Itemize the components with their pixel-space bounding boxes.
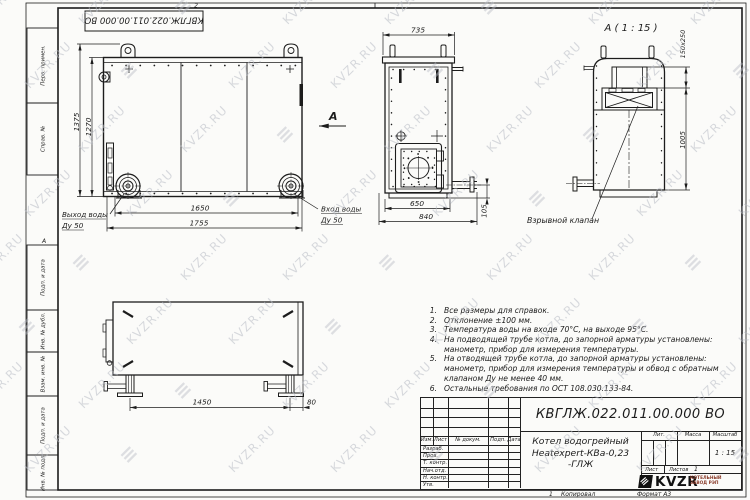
side-dim-width-top: 735 <box>411 26 425 35</box>
right-leg <box>264 375 304 397</box>
col-doc: № докум. <box>448 436 488 445</box>
note-text: манометр, прибор для измерения температу… <box>444 345 639 355</box>
top-stamp: КВГЛЖ.022.011.00.000 ВО <box>84 11 203 31</box>
kvzr-logo-subtitle-line2: ЗАВОД РЭП <box>690 481 722 486</box>
detail-a-title: А ( 1 : 15 ) <box>604 23 658 34</box>
outlet-label-line1: Выход воды <box>62 210 108 219</box>
bottom-dim-legs: 1450 <box>193 398 212 407</box>
margin-field-1: Справ. № <box>41 125 47 152</box>
product-name: Котел водогрейный Heatexpert-КВа-0,23 -Г… <box>520 436 641 471</box>
note-line: манометр, прибор для измерения температу… <box>424 364 744 374</box>
col-list: Лист <box>433 436 448 445</box>
note-text: Все размеры для справок. <box>444 306 549 316</box>
drawing-sheet: 2 А Перв. примен. Справ. № Подп. и дата … <box>0 0 750 500</box>
note-text: Остальные требования по ОСТ 108.030.133-… <box>444 384 633 394</box>
note-number: 1. <box>424 306 437 316</box>
row-razrab: Разраб. <box>423 446 443 452</box>
note-line: 5.На отводящей трубе котла, до запорной … <box>424 354 744 364</box>
margin-field-3: Инв. № дубл. <box>41 313 47 350</box>
title-block: Изм. Лист № докум. Подп. Дата Разраб. Пр… <box>420 397 742 490</box>
note-text: клапаном Ду не менее 40 мм. <box>444 374 563 384</box>
margin-labels: Перв. примен. Справ. № Подп. и дата Инв.… <box>41 45 47 491</box>
lit-label: Лит. <box>641 431 677 440</box>
note-text: На отводящей трубе котла, до запорной ар… <box>444 354 707 364</box>
margin-field-0: Перв. примен. <box>41 45 47 85</box>
frame-zone-top: 2 <box>194 3 198 10</box>
note-text: На подводящей трубе котла, до запорной а… <box>444 335 713 345</box>
note-number: 2. <box>424 316 437 326</box>
col-podp: Подп. <box>488 436 508 445</box>
detail-a-dim-height: 1005 <box>679 131 687 149</box>
note-number: 4. <box>424 335 437 345</box>
note-text: манометр, прибор для измерения температу… <box>444 364 719 374</box>
inlet-label-line1: Вход воды <box>321 205 361 214</box>
note-text: Отклонение ±100 мм. <box>444 316 532 326</box>
bottom-dim-offset: 80 <box>307 399 316 407</box>
front-dim-height-overall: 1375 <box>72 112 81 131</box>
front-dim-height-body: 1270 <box>84 117 93 136</box>
explosion-valve <box>602 88 657 110</box>
view-direction-letter: А <box>328 110 338 123</box>
margin-field-5: Подп. и дата <box>41 407 47 444</box>
scale-label: Масштаб <box>709 431 741 440</box>
note-line: 3.Температура воды на входе 70°С, на вых… <box>424 325 744 335</box>
note-line: 1.Все размеры для справок. <box>424 306 744 316</box>
note-number: 6. <box>424 384 437 394</box>
row-nkontr: Н. контр. <box>423 475 448 481</box>
side-dim-width-overall: 840 <box>419 212 433 221</box>
detail-a-dim-flue: 150x250 <box>679 30 687 59</box>
side-dim-width-body: 650 <box>410 199 424 208</box>
row-tkontr: Т. контр. <box>423 460 447 466</box>
note-line: 6.Остальные требования по ОСТ 108.030.13… <box>424 384 744 394</box>
sheet-label: Лист <box>645 467 658 473</box>
outlet-flange <box>114 172 142 199</box>
note-number: 3. <box>424 325 437 335</box>
product-name-line1: Котел водогрейный <box>520 436 641 448</box>
margin-field-6: Инв. № подл. <box>41 454 47 491</box>
row-utv: Утв. <box>423 482 434 488</box>
col-izm: Изм. <box>421 436 433 445</box>
technical-notes: 1.Все размеры для справок. 2.Отклонение … <box>424 306 744 393</box>
scale-value: 1 : 15 <box>709 440 741 465</box>
note-number <box>424 364 437 374</box>
front-dim-width-overall: 1755 <box>190 219 209 228</box>
front-dim-width-flanges: 1650 <box>191 204 210 213</box>
title-doc-number: КВГЛЖ.022.011.00.000 ВО <box>520 398 741 431</box>
mass-label: Масса <box>677 431 709 440</box>
view-detail-a <box>566 46 665 197</box>
side-dim-pipe-height: 105 <box>481 204 489 218</box>
row-nachotd: Нач.отд. <box>423 468 446 474</box>
margin-field-4: Взам. инв. № <box>41 355 47 392</box>
view-bottom <box>103 302 304 397</box>
view-detail-a-dims <box>592 67 690 219</box>
kvzr-logo-icon: ≡ <box>638 475 653 488</box>
view-side <box>383 45 482 198</box>
kvzr-logo-subtitle: КОТЕЛЬНЫЙ ЗАВОД РЭП <box>690 476 722 487</box>
left-leg <box>104 375 143 397</box>
note-text: Температура воды на входе 70°С, на выход… <box>444 325 648 335</box>
col-data: Дата <box>508 436 520 445</box>
note-number <box>424 374 437 384</box>
note-number <box>424 345 437 355</box>
note-line: 4.На подводящей трубе котла, до запорной… <box>424 335 744 345</box>
footer-copied-label: Копировал <box>561 491 595 498</box>
frame-zone-side: А <box>41 238 46 245</box>
row-prov: Пров. <box>423 453 438 459</box>
inlet-flange <box>277 172 305 199</box>
product-name-line2: Heatexpert-КВа-0,23 -ГЛЖ <box>520 448 641 471</box>
note-line: манометр, прибор для измерения температу… <box>424 345 744 355</box>
top-stamp-doc-number: КВГЛЖ.022.011.00.000 ВО <box>84 15 203 25</box>
note-number: 5. <box>424 354 437 364</box>
outlet-label-line2: Ду 50 <box>61 221 84 230</box>
explosion-valve-label: Взрывной клапан <box>527 216 599 225</box>
footer-copy-number: 1 <box>549 491 553 498</box>
inlet-label-line2: Ду 50 <box>320 216 343 225</box>
view-side-dims <box>379 32 490 225</box>
note-line: клапаном Ду не менее 40 мм. <box>424 374 744 384</box>
view-front <box>99 44 305 199</box>
note-line: 2.Отклонение ±100 мм. <box>424 316 744 326</box>
margin-field-2: Подп. и дата <box>41 259 47 296</box>
footer-format-label: Формат А3 <box>637 491 671 498</box>
view-bottom-dims <box>130 376 303 411</box>
